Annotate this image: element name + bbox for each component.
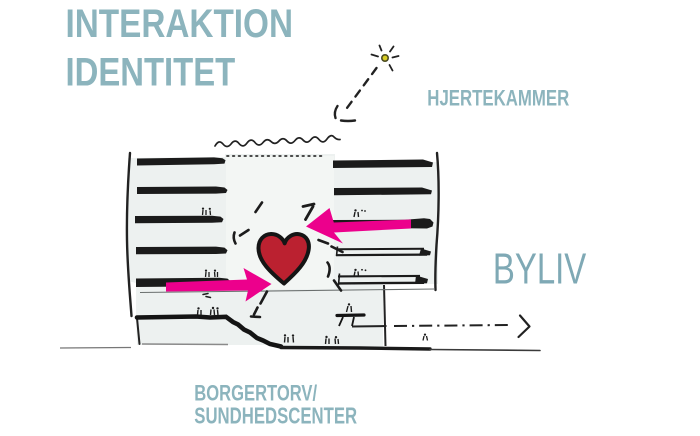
- svg-text:SUNDHEDSCENTER: SUNDHEDSCENTER: [194, 403, 357, 429]
- svg-text:HJERTEKAMMER: HJERTEKAMMER: [427, 86, 569, 111]
- svg-text:IDENTITET: IDENTITET: [66, 50, 236, 94]
- svg-text:INTERAKTION: INTERAKTION: [66, 2, 294, 46]
- svg-text:BYLIV: BYLIV: [493, 245, 587, 294]
